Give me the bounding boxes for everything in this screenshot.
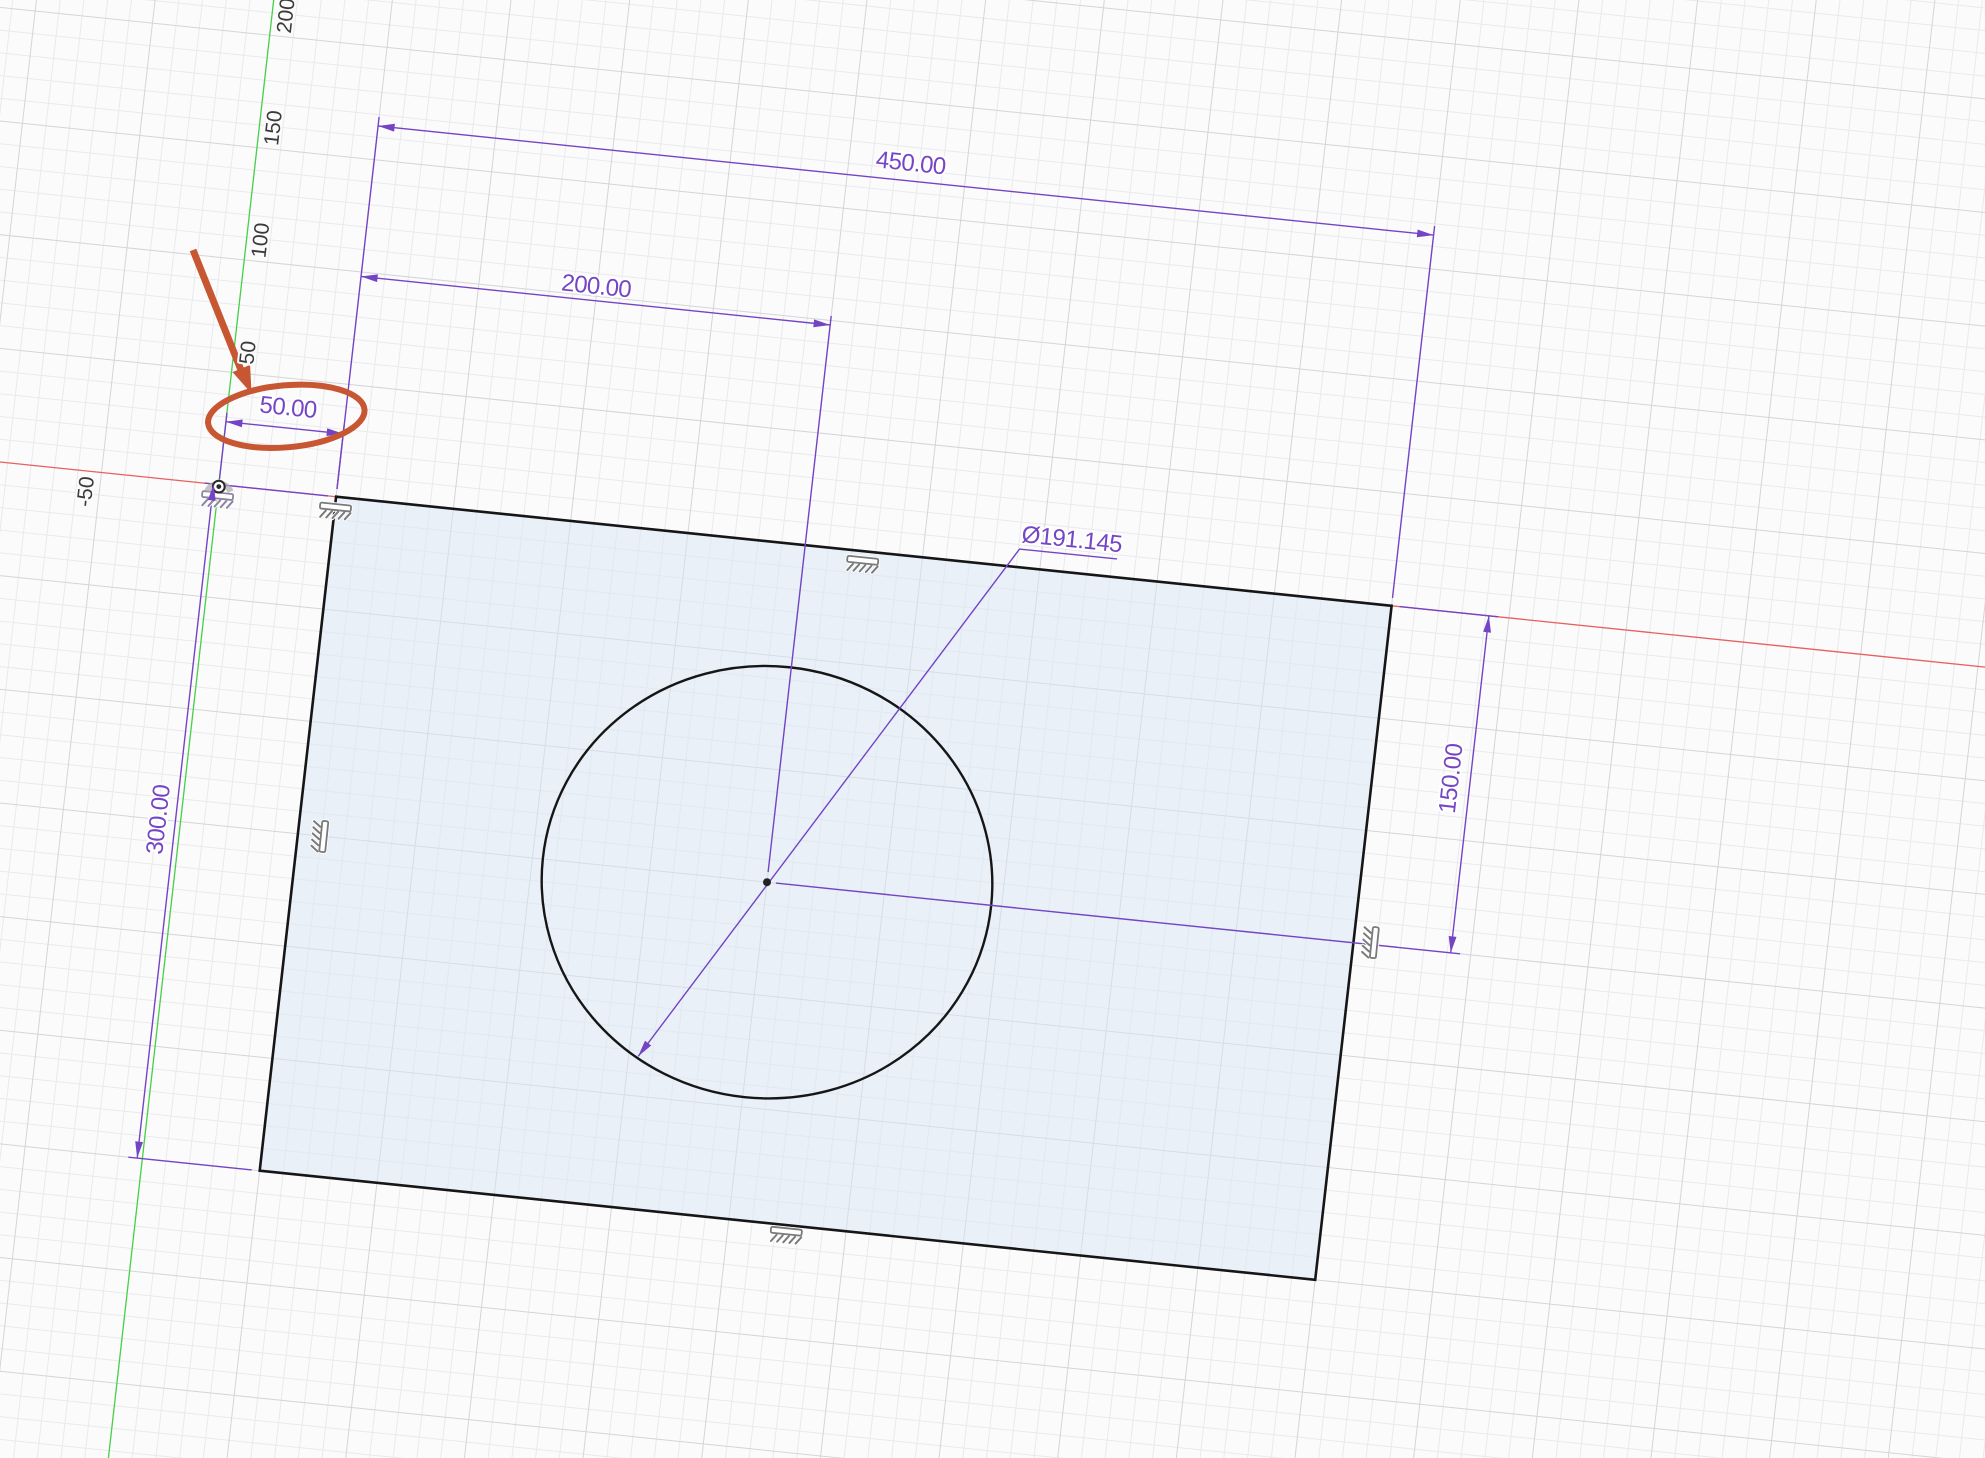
svg-text:100: 100 <box>247 222 274 259</box>
svg-text:50: 50 <box>235 340 260 366</box>
svg-text:-50: -50 <box>73 475 99 508</box>
svg-text:200: 200 <box>273 0 300 34</box>
svg-text:150: 150 <box>260 109 287 146</box>
